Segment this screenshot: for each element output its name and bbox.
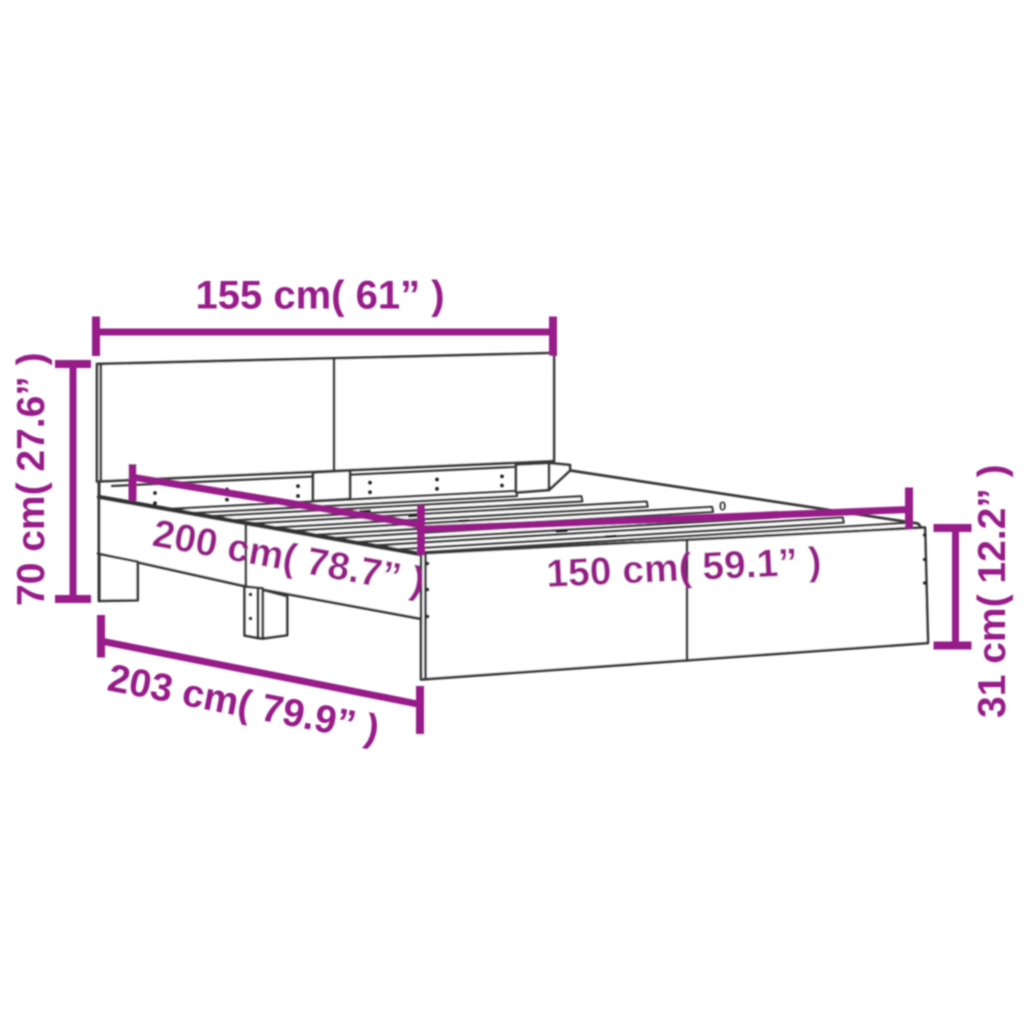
svg-text:70 cm( 27.6” ): 70 cm( 27.6” )	[10, 352, 53, 606]
svg-text:0: 0	[719, 499, 726, 514]
svg-text:31 cm( 12.2” ): 31 cm( 12.2” )	[971, 464, 1014, 718]
svg-text:155 cm( 61” ): 155 cm( 61” )	[195, 274, 444, 318]
